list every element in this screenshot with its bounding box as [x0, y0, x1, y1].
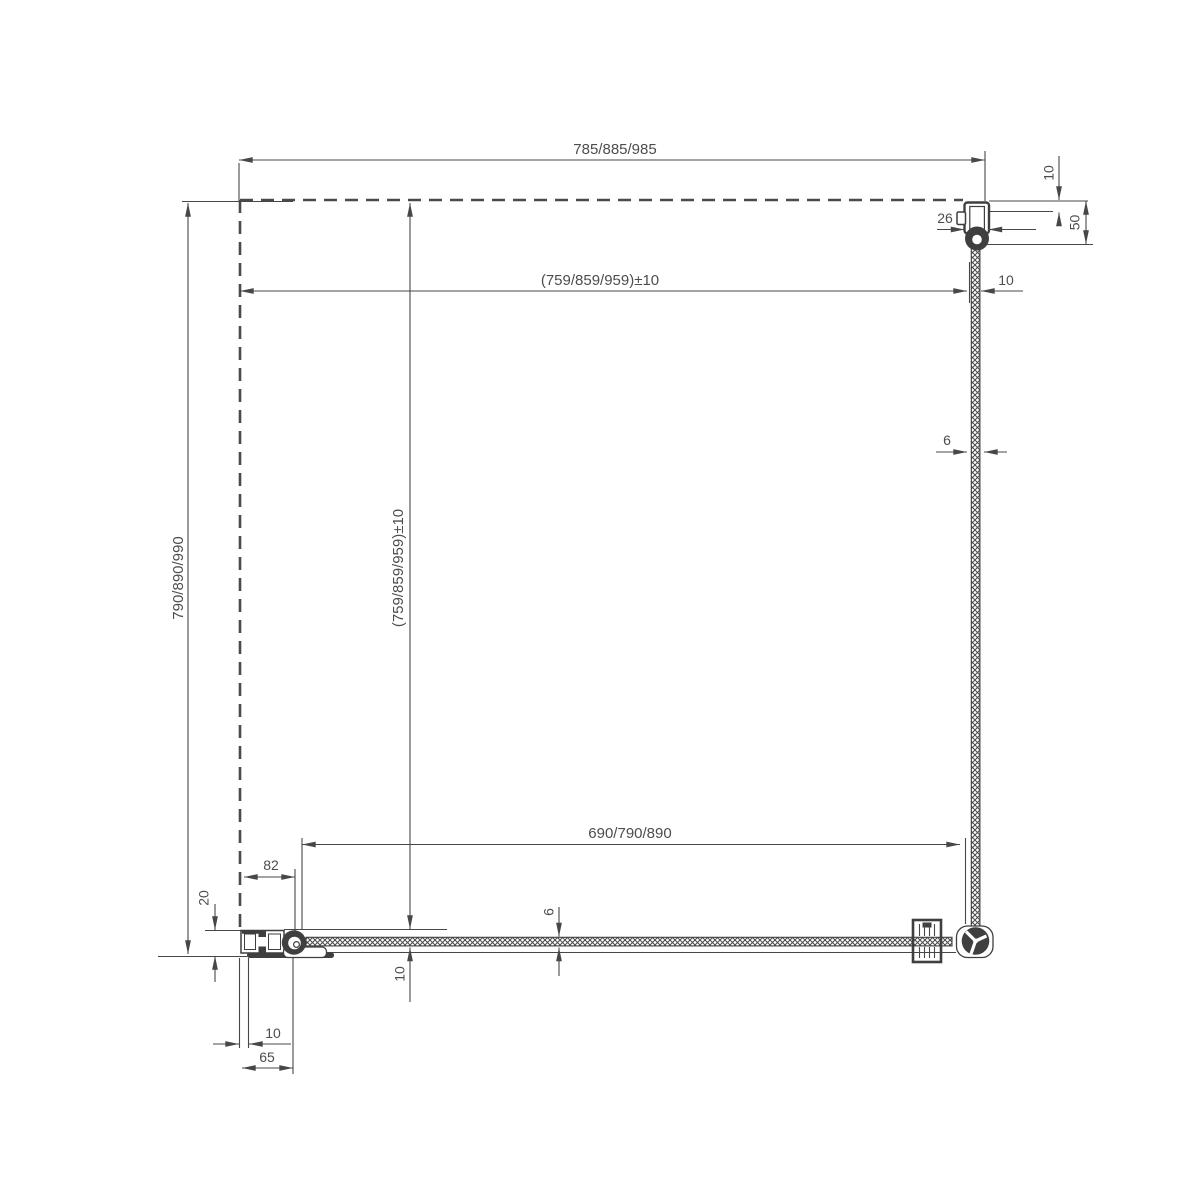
dim-inner-width-adjust-label: 10	[998, 272, 1014, 288]
profile-notch	[259, 931, 267, 938]
corner-clamp	[957, 926, 994, 958]
clamp-screw	[973, 939, 978, 944]
glass-panel-side	[971, 246, 980, 928]
dim-inner-width-label: (759/859/959)±10	[541, 272, 659, 289]
wall-profile-top-right	[957, 203, 989, 251]
profile-chamber	[970, 207, 985, 230]
dim-wall-gap-top-label: 10	[1041, 165, 1057, 181]
profile-tab	[957, 212, 966, 225]
support-bracket-notch	[923, 923, 932, 928]
dim-side-glass-thickness-label: 6	[943, 432, 951, 448]
wall-lines	[240, 200, 963, 930]
technical-drawing-canvas: 785/885/985 (759/859/959)±10 10 10 50 26…	[0, 0, 1200, 1200]
dim-inner-depth: (759/859/959)±10	[390, 203, 410, 929]
dim-bottom-profile-depth-label: 20	[196, 890, 212, 906]
shower-enclosure-drawing: 785/885/985 (759/859/959)±10 10 10 50 26…	[0, 0, 1200, 1200]
profile-chamber	[245, 934, 256, 950]
dim-front-glass-width-label: 690/790/890	[588, 825, 671, 842]
dim-profile-width-label: 26	[937, 210, 953, 226]
profile-notch	[259, 947, 267, 954]
dim-overall-width: 785/885/985	[239, 141, 985, 160]
dim-overall-depth: 790/890/990	[170, 203, 188, 954]
glass-panels	[306, 246, 980, 953]
dim-hinge-offset-label: 82	[263, 857, 279, 873]
hinge-screw	[294, 942, 300, 948]
dim-bottom-profile-length: 65	[242, 1049, 293, 1068]
dim-inner-width: (759/859/959)±10 10	[240, 272, 1023, 291]
dim-inner-depth-label: (759/859/959)±10	[390, 509, 407, 627]
profile-chamber	[269, 934, 281, 950]
dim-profile-depth: 50	[1067, 201, 1086, 244]
dim-bottom-profile-depth: 20	[196, 890, 215, 982]
dim-overall-depth-label: 790/890/990	[170, 536, 187, 619]
dim-wall-gap-top: 10	[1041, 156, 1059, 224]
dim-bottom-profile-length-label: 65	[259, 1049, 275, 1065]
dim-front-glass-gap: 10	[392, 948, 410, 1003]
dim-overall-width-label: 785/885/985	[573, 141, 656, 158]
glass-clamp-screw	[972, 235, 982, 245]
dim-front-glass-gap-label: 10	[392, 966, 408, 982]
dim-front-glass-thickness-label: 6	[541, 908, 557, 916]
dim-profile-depth-label: 50	[1067, 215, 1083, 231]
dim-front-glass-width: 690/790/890	[302, 825, 960, 845]
glass-panel-front	[306, 937, 952, 946]
dim-hinge-offset: 82	[244, 857, 295, 877]
dim-bottom-profile-gap-label: 10	[265, 1025, 281, 1041]
dim-bottom-profile-gap: 10	[213, 1025, 291, 1044]
